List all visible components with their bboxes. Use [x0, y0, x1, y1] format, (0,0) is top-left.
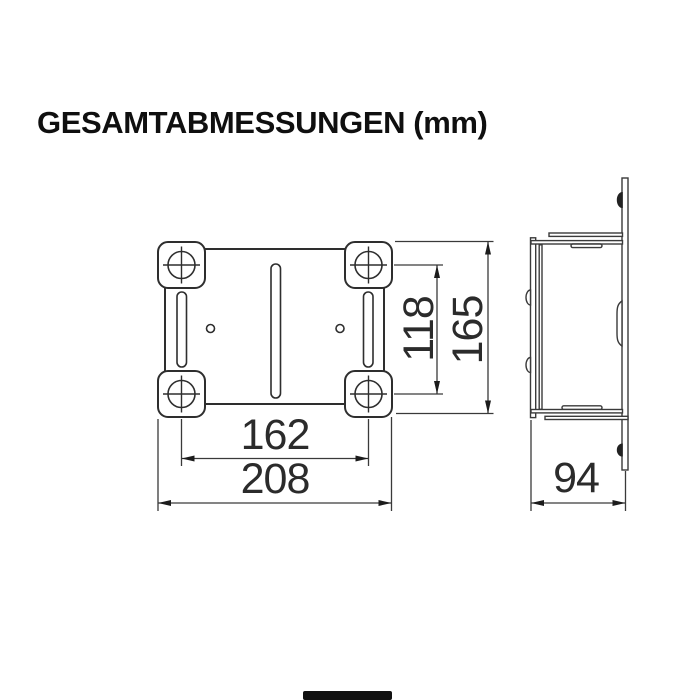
- dimension-drawing: 118 165 162 208: [0, 0, 700, 700]
- dim-depth: 94: [531, 420, 626, 511]
- bottom-bar: [303, 691, 392, 700]
- top-flange: [531, 233, 623, 248]
- wall-crimp-lower: [526, 358, 531, 373]
- outer-width-label: 208: [241, 455, 310, 503]
- rivet-top: [617, 193, 622, 208]
- dim-inner-height: 118: [394, 265, 443, 394]
- pilot-hole-left: [207, 325, 215, 333]
- arrowhead: [531, 500, 544, 506]
- slot-center: [271, 264, 281, 398]
- arrowhead: [434, 265, 440, 278]
- arrowhead: [379, 500, 392, 506]
- slot-profile-bulge: [617, 301, 622, 346]
- wall-crimp-upper: [526, 290, 531, 305]
- arrowhead: [158, 500, 171, 506]
- front-view: [158, 242, 392, 417]
- inner-height-label: 118: [395, 296, 443, 362]
- arrowhead: [434, 381, 440, 394]
- pilot-hole-right: [336, 325, 344, 333]
- outer-height-label: 165: [444, 296, 492, 365]
- inner-width-label: 162: [241, 411, 310, 459]
- channel-outer-wall: [531, 238, 536, 418]
- arrowhead: [356, 456, 369, 462]
- rivet-bottom: [617, 444, 622, 456]
- arrowhead: [485, 242, 491, 255]
- arrowhead: [182, 456, 195, 462]
- arrowhead: [613, 500, 626, 506]
- slot-right: [364, 292, 374, 367]
- side-view: [526, 178, 628, 470]
- page: GESAMTABMESSUNGEN (mm): [0, 0, 700, 700]
- slot-left: [177, 292, 187, 367]
- bottom-flange: [531, 406, 628, 420]
- arrowhead: [485, 401, 491, 414]
- back-plate-profile: [622, 178, 628, 470]
- channel-inner-wall: [539, 245, 542, 409]
- depth-label: 94: [553, 454, 599, 502]
